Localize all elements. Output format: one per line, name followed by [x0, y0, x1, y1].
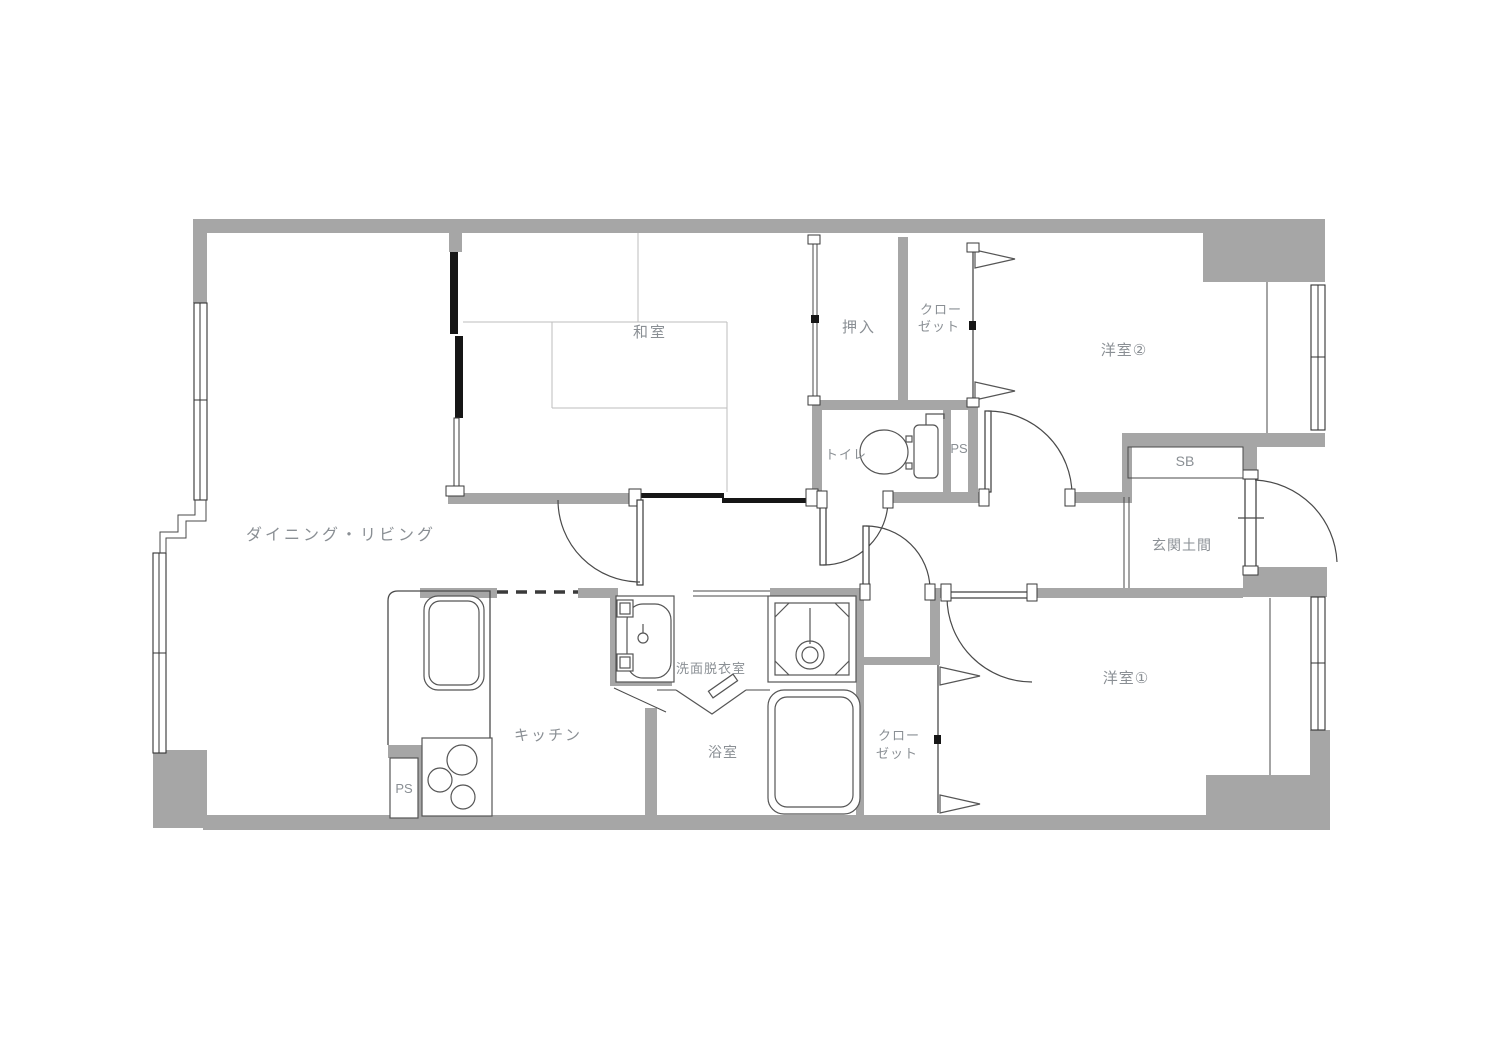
room-label-washitsu: 和室	[633, 324, 667, 341]
room-label-closet-a-1: クロー	[920, 302, 962, 317]
room-labels: ダイニング・リビング 和室 押入 クロー ゼット 洋室② トイレ PS SB 玄…	[246, 302, 1212, 796]
washroom-sliding-panel	[693, 591, 770, 596]
room-label-oshiire: 押入	[842, 319, 876, 336]
room-label-sb: SB	[1176, 453, 1195, 469]
room-label-genkan: 玄関土間	[1152, 537, 1212, 553]
room-label-closet-b-1: クロー	[878, 728, 920, 743]
door-yoshitsu2	[979, 411, 1075, 506]
bathtub-fixture	[768, 690, 860, 814]
tatami-mat-lines	[463, 233, 727, 492]
floor-plan: ダイニング・リビング 和室 押入 クロー ゼット 洋室② トイレ PS SB 玄…	[0, 0, 1492, 1054]
washitsu-slider-1	[637, 493, 724, 498]
room-label-ps-b: PS	[395, 781, 413, 796]
closet-b-bifold-door	[934, 665, 980, 813]
window-yoshitsu2	[1311, 285, 1325, 430]
room-label-senmen: 洗面脱衣室	[676, 661, 746, 676]
fusuma-panel-2	[455, 336, 463, 418]
room-label-yoshitsu1: 洋室①	[1103, 670, 1149, 687]
door-yoshitsu1	[941, 584, 1037, 682]
stove	[422, 738, 492, 816]
window-yoshitsu1	[1311, 597, 1325, 730]
toilet-fixture	[860, 414, 944, 478]
room-label-closet-a-2: ゼット	[918, 319, 960, 334]
room-label-closet-b-2: ゼット	[876, 746, 918, 761]
vanity-fixture	[616, 596, 674, 682]
room-label-yoshitsu2: 洋室②	[1101, 342, 1147, 359]
door-entrance	[1238, 470, 1337, 575]
fusuma-panel-1	[450, 252, 458, 334]
door-washroom	[860, 526, 935, 600]
walls	[153, 219, 1330, 830]
kitchen-sink	[424, 596, 484, 690]
oshiire-fusuma	[808, 235, 820, 405]
room-label-bath: 浴室	[708, 744, 738, 760]
window-living-lower	[153, 553, 166, 753]
closet-a-bifold-door	[967, 243, 1015, 407]
room-label-kitchen: キッチン	[514, 727, 582, 744]
floor-plan-canvas: ダイニング・リビング 和室 押入 クロー ゼット 洋室② トイレ PS SB 玄…	[0, 0, 1492, 1054]
washing-machine-pan	[768, 596, 856, 682]
room-label-toilet: トイレ	[825, 447, 867, 462]
room-label-ps-a: PS	[950, 441, 968, 456]
room-label-living: ダイニング・リビング	[246, 526, 436, 544]
window-bay-step	[160, 500, 206, 553]
kitchen-corner-diagonal	[614, 688, 666, 712]
washitsu-slider-2	[722, 498, 810, 503]
window-living-upper	[194, 303, 207, 500]
door-living	[558, 500, 643, 585]
